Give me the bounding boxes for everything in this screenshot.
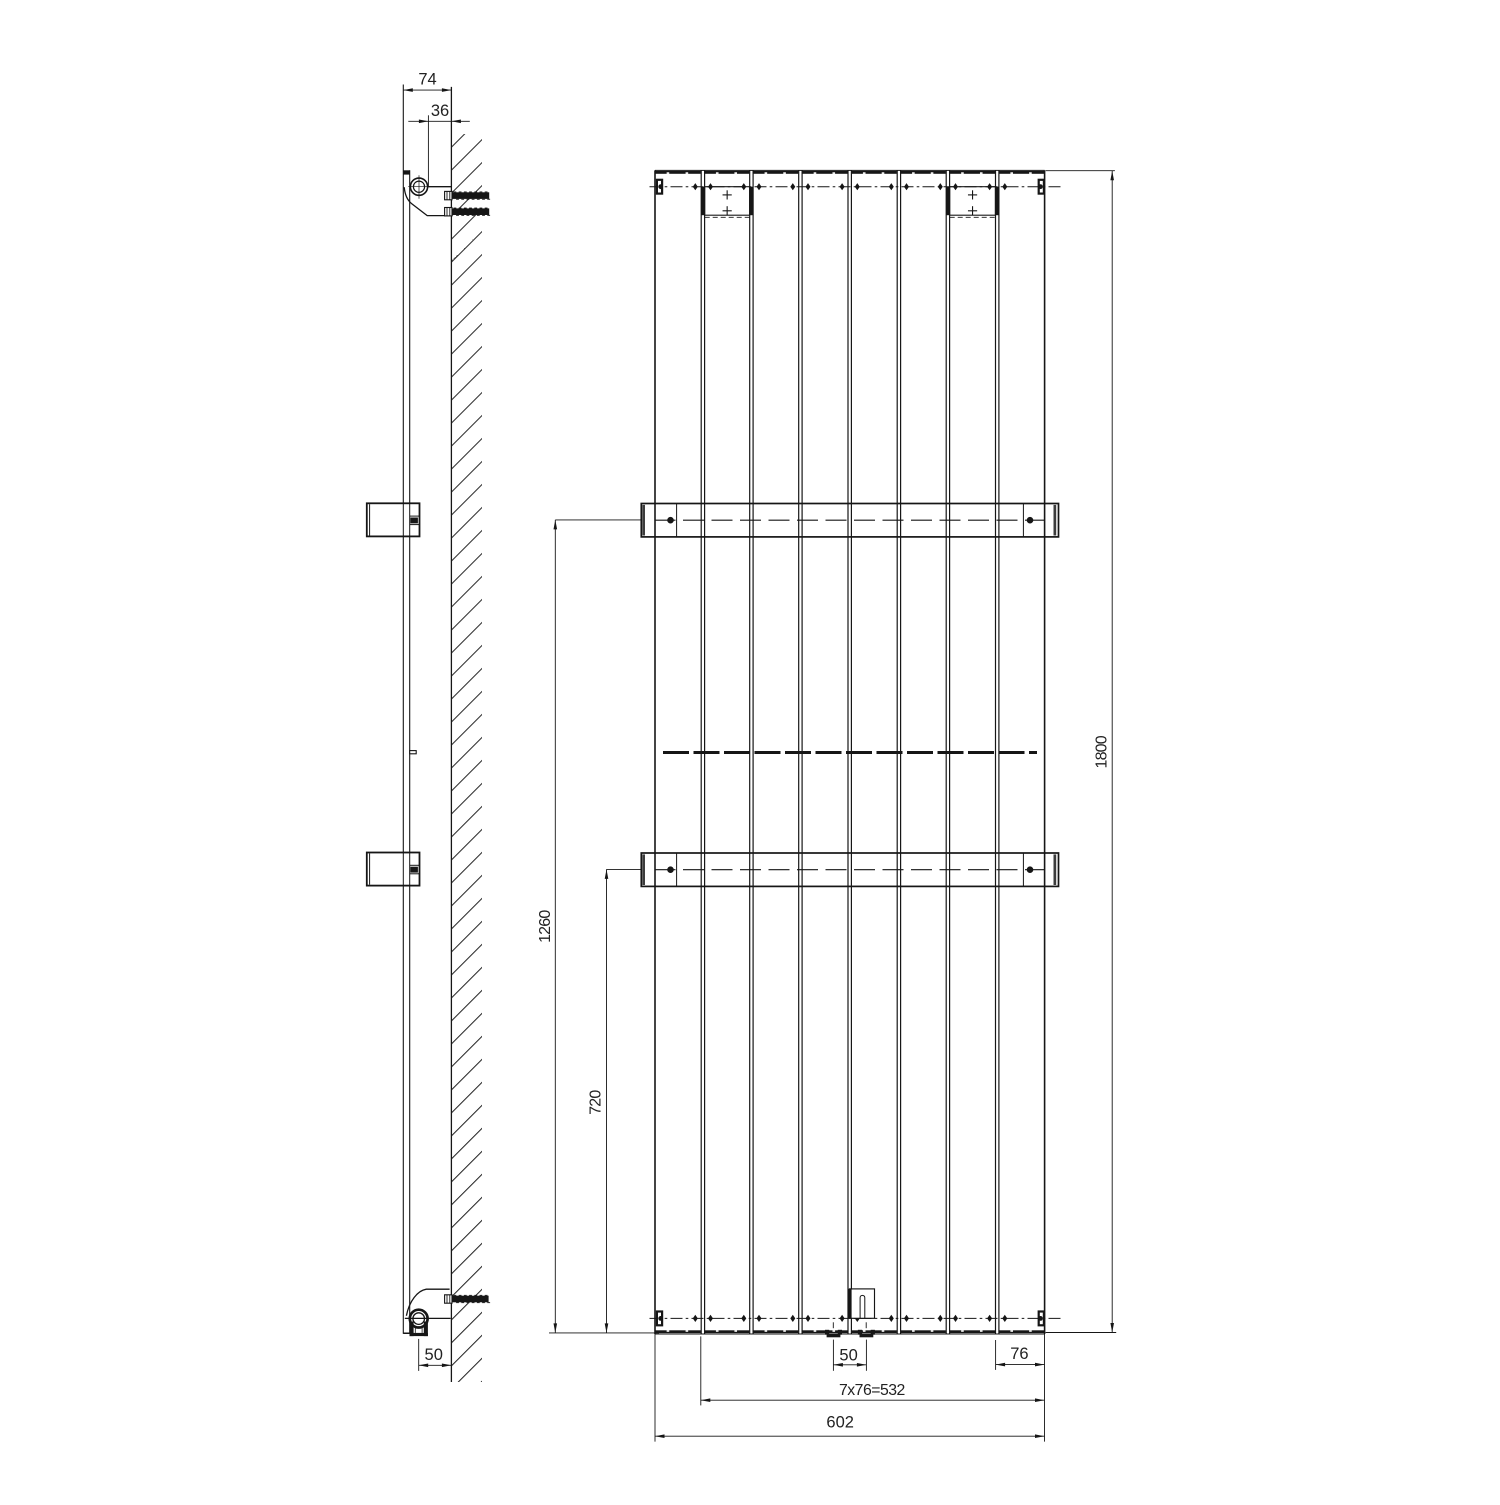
svg-text:74: 74 bbox=[418, 70, 436, 88]
svg-text:1800: 1800 bbox=[1093, 735, 1110, 768]
svg-text:7x76=532: 7x76=532 bbox=[839, 1382, 905, 1399]
svg-text:720: 720 bbox=[588, 1090, 605, 1115]
svg-text:36: 36 bbox=[431, 102, 449, 120]
svg-text:602: 602 bbox=[826, 1413, 854, 1431]
svg-text:76: 76 bbox=[1010, 1345, 1028, 1363]
svg-text:50: 50 bbox=[839, 1346, 857, 1364]
svg-text:1260: 1260 bbox=[537, 910, 554, 943]
svg-text:50: 50 bbox=[425, 1346, 443, 1364]
